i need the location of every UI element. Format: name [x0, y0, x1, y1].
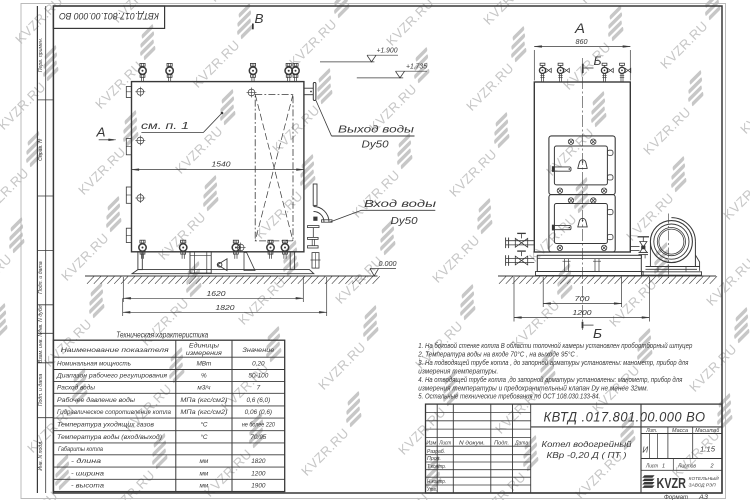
svg-text:мм: мм — [200, 483, 209, 490]
svg-text:Техническая характеристика: Техническая характеристика — [116, 330, 208, 339]
svg-text:Подп. и дата: Подп. и дата — [38, 261, 44, 294]
svg-text:Дата: Дата — [514, 440, 528, 446]
svg-text:КВТД .017.801.00.000 ВО: КВТД .017.801.00.000 ВО — [544, 410, 706, 425]
svg-text:мм: мм — [200, 458, 209, 465]
svg-text:Перв. примен.: Перв. примен. — [38, 38, 44, 72]
svg-text:1900: 1900 — [251, 483, 266, 490]
svg-text:2: 2 — [709, 464, 713, 470]
svg-text:Масса: Масса — [672, 428, 688, 434]
svg-text:Выход воды: Выход воды — [338, 124, 414, 136]
svg-text:- длина: - длина — [71, 457, 102, 465]
svg-text:Пров.: Пров. — [427, 456, 441, 462]
svg-text:1540: 1540 — [212, 160, 232, 169]
svg-text:Вход воды: Вход воды — [364, 198, 436, 210]
svg-text:+1.735: +1.735 — [406, 64, 427, 71]
svg-text:1200: 1200 — [573, 308, 593, 317]
svg-text:1: 1 — [662, 464, 665, 470]
svg-text:А3: А3 — [698, 494, 709, 500]
svg-text:Листов: Листов — [677, 464, 696, 470]
svg-text:МПа (кгс/см2): МПа (кгс/см2) — [180, 397, 227, 404]
svg-text:0.000: 0.000 — [379, 261, 397, 268]
svg-text:В: В — [255, 11, 264, 26]
svg-text:Лит.: Лит. — [645, 428, 657, 434]
svg-text:Номинальная мощность: Номинальная мощность — [57, 361, 131, 368]
svg-text:Взам. инв. N: Взам. инв. N — [38, 333, 44, 363]
svg-text:Котел водогрейный: Котел водогрейный — [542, 439, 632, 449]
svg-text:Инв. N дубл.: Инв. N дубл. — [38, 304, 44, 334]
svg-text:Единицы: Единицы — [189, 342, 219, 350]
svg-text:А: А — [574, 20, 585, 36]
svg-text:Формат: Формат — [664, 494, 688, 500]
svg-text:2. Температура воды на входе: 2. Температура воды на входе 70°С , на в… — [417, 351, 578, 359]
svg-text:Рабочее давление воды: Рабочее давление воды — [57, 396, 135, 404]
svg-text:1820: 1820 — [251, 458, 266, 465]
svg-text:°С: °С — [200, 433, 208, 441]
svg-text:Температура воды (вход/выход): Температура воды (вход/выход) — [57, 433, 162, 441]
svg-text:Изм: Изм — [426, 440, 436, 446]
svg-text:1200: 1200 — [251, 470, 266, 477]
svg-text:7: 7 — [257, 385, 261, 392]
svg-text:Расход воды: Расход воды — [57, 384, 95, 392]
svg-text:Б: Б — [594, 54, 602, 68]
svg-text:Н.контр.: Н.контр. — [427, 479, 446, 485]
svg-text:5. Остальные технические треб: 5. Остальные технические требования по О… — [418, 393, 600, 401]
svg-text:не более 220: не более 220 — [242, 421, 275, 429]
svg-text:1820: 1820 — [216, 303, 236, 312]
svg-text:Б: Б — [593, 326, 603, 341]
svg-text:0,6 (6,0): 0,6 (6,0) — [246, 397, 270, 404]
svg-text:N докум.: N докум. — [459, 440, 485, 446]
svg-text:Утв.: Утв. — [427, 487, 437, 493]
svg-text:1. На боковой стенке котла В: 1. На боковой стенке котла В области топ… — [418, 342, 692, 350]
svg-text:Диапазон рабочего регулировани: Диапазон рабочего регулирования — [56, 372, 168, 380]
svg-text:измерения температуры и предох: измерения температуры и предохранительны… — [418, 384, 648, 392]
svg-text:1:15: 1:15 — [700, 445, 716, 454]
svg-text:- ширина: - ширина — [71, 470, 105, 477]
svg-text:+1.900: +1.900 — [377, 48, 398, 55]
svg-text:КВр -0,20 Д ( ПТ ): КВр -0,20 Д ( ПТ ) — [547, 451, 627, 460]
svg-text:Подп.: Подп. — [494, 440, 509, 446]
svg-text:%: % — [201, 373, 207, 380]
svg-text:1620: 1620 — [207, 289, 227, 298]
svg-text:Инв. N подл.: Инв. N подл. — [38, 440, 44, 470]
svg-text:KVZR: KVZR — [657, 476, 687, 492]
svg-text:Лист: Лист — [645, 464, 658, 470]
svg-text:4. На отводящей трубе котла ,: 4. На отводящей трубе котла ,до запорной… — [418, 376, 682, 384]
svg-text:Габариты котла: Габариты котла — [58, 445, 103, 453]
svg-text:И: И — [642, 446, 648, 455]
svg-text:Подп. и дата: Подп. и дата — [38, 374, 44, 407]
svg-text:70/95: 70/95 — [250, 434, 266, 441]
svg-text:860: 860 — [576, 37, 589, 46]
svg-text:0,06 (0,6): 0,06 (0,6) — [245, 409, 272, 416]
svg-text:МПа (кгс/см2): МПа (кгс/см2) — [180, 409, 227, 416]
svg-text:Лист: Лист — [438, 440, 451, 446]
svg-text:Разраб.: Разраб. — [427, 449, 445, 455]
svg-text:Справ. N: Справ. N — [38, 139, 44, 161]
svg-text:МВт: МВт — [196, 361, 212, 368]
svg-text:Значение: Значение — [242, 347, 274, 354]
svg-text:ЗАВОД РЭП: ЗАВОД РЭП — [689, 483, 717, 488]
svg-text:КВТД.017.801.00.000 ВО: КВТД.017.801.00.000 ВО — [58, 10, 159, 21]
svg-text:3. На подводящей трубе котла: 3. На подводящей трубе котла , до запорн… — [418, 359, 688, 367]
svg-text:Dy50: Dy50 — [362, 139, 389, 151]
svg-text:мм: мм — [200, 470, 209, 477]
svg-text:Масштаб: Масштаб — [695, 428, 720, 434]
svg-text:50-100: 50-100 — [248, 373, 268, 380]
svg-text:см. п. 1: см. п. 1 — [141, 121, 189, 132]
svg-text:КОТЕЛЬНЫЙ: КОТЕЛЬНЫЙ — [689, 474, 720, 481]
svg-text:м3/ч: м3/ч — [197, 385, 211, 392]
svg-text:°С: °С — [200, 421, 208, 429]
svg-text:А: А — [95, 125, 105, 140]
svg-text:Наименование показателя: Наименование показателя — [61, 347, 169, 354]
svg-text:измерения температуры.: измерения температуры. — [418, 367, 498, 375]
svg-text:0,20: 0,20 — [252, 361, 265, 368]
svg-text:Т.контр.: Т.контр. — [427, 464, 446, 470]
svg-text:- высота: - высота — [71, 483, 105, 490]
svg-text:Гидравлическое сопротивление к: Гидравлическое сопротивление котла — [57, 408, 171, 416]
svg-text:700: 700 — [575, 294, 591, 303]
svg-text:измерения: измерения — [186, 350, 222, 357]
svg-text:Температура уходящих газов: Температура уходящих газов — [57, 421, 155, 429]
svg-text:Dy50: Dy50 — [391, 215, 418, 227]
